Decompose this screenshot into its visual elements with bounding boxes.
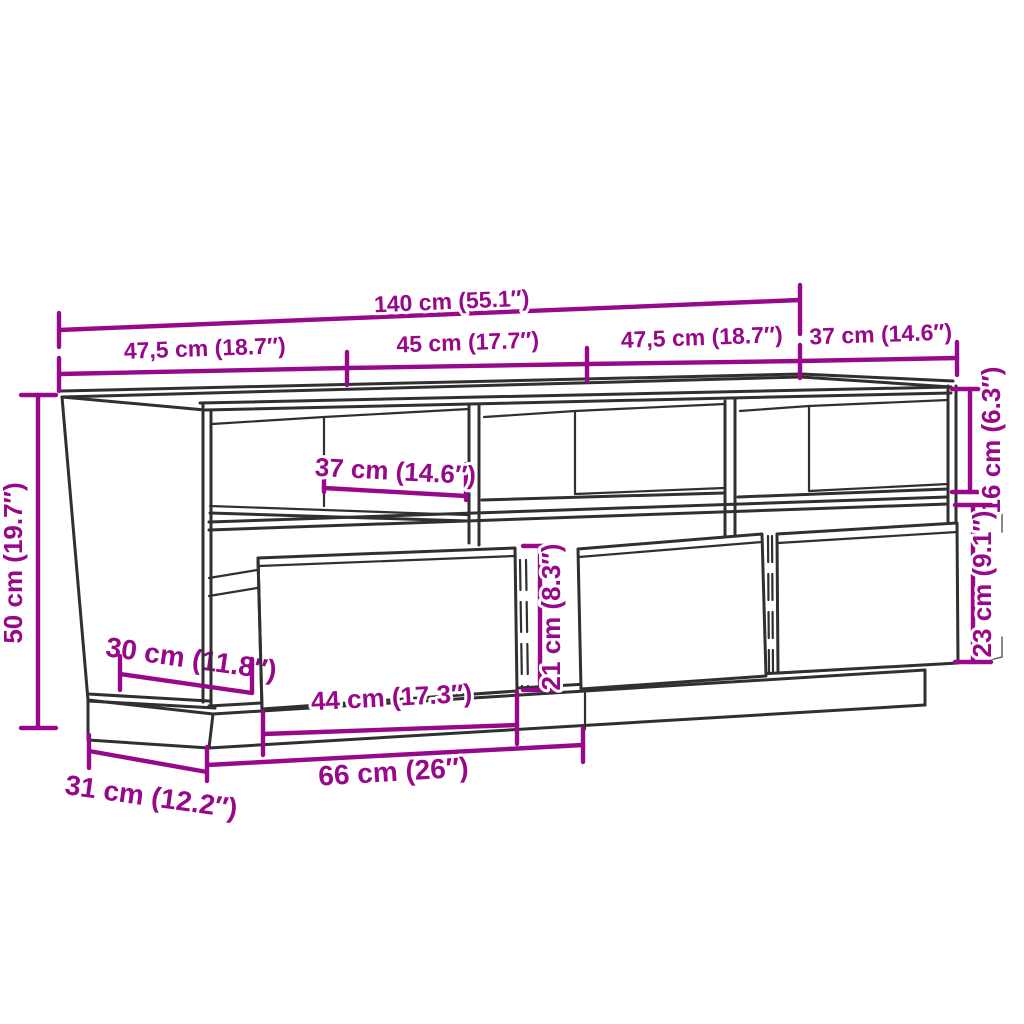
dimension-label: 37 cm (14.6″)	[314, 452, 477, 490]
dimension-label: 21 cm (8.3″)	[536, 544, 566, 691]
dimension-label: 16 cm (6.3″)	[976, 367, 1006, 514]
dimension-diagram: 30 cm (11.8″) 140 cm (55.1″) 47,5 cm (18…	[0, 0, 1024, 1024]
dimension-shelf-opening-height: 16 cm (6.3″)	[952, 367, 1006, 514]
dimension-drawer-front-height: 21 cm (8.3″)	[523, 544, 566, 691]
dimension-label: 23 cm (9.1″)	[967, 511, 997, 658]
dimension-label: 47,5 cm (18.7″)	[620, 321, 783, 353]
shelves	[210, 484, 948, 521]
shelf-dividers	[469, 386, 956, 545]
dimension-drawer-zone-height: 23 cm (9.1″)	[955, 505, 997, 662]
dimension-label: 50 cm (19.7″)	[0, 482, 28, 643]
dimension-shelf-opening-width: 37 cm (14.6″)	[314, 452, 477, 500]
dimension-overall-height: 50 cm (19.7″)	[0, 395, 56, 728]
dimension-label: 31 cm (12.2″)	[63, 769, 239, 824]
drawer-2	[578, 534, 766, 689]
mid-board	[209, 497, 948, 530]
diagram-svg: 30 cm (11.8″) 140 cm (55.1″) 47,5 cm (18…	[0, 0, 1024, 1024]
dimension-label: 47,5 cm (18.7″)	[123, 332, 286, 364]
drawer-3	[777, 523, 958, 673]
drawer-side-hint	[209, 570, 257, 596]
dimension-label: 45 cm (17.7″)	[396, 327, 540, 358]
dimension-label: 37 cm (14.6″)	[809, 319, 953, 350]
